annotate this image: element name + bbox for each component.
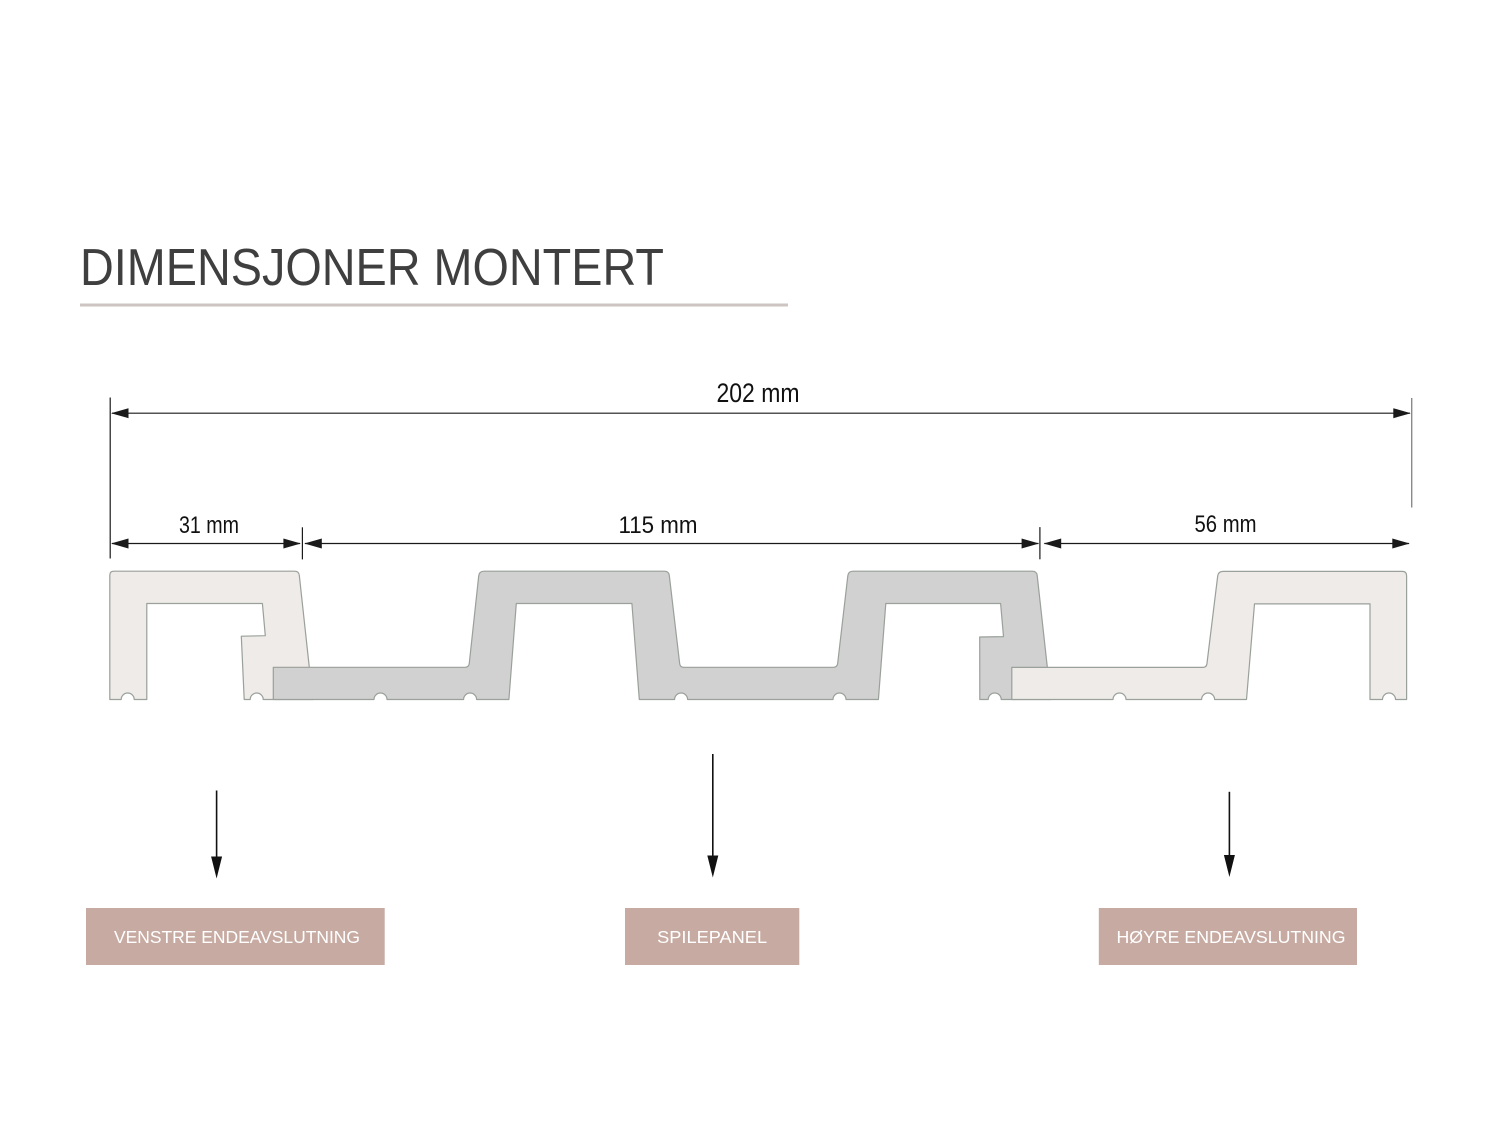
svg-text:SPILEPANEL: SPILEPANEL bbox=[657, 927, 767, 947]
svg-text:DIMENSJONER MONTERT: DIMENSJONER MONTERT bbox=[80, 239, 664, 297]
svg-text:31 mm: 31 mm bbox=[179, 512, 239, 539]
svg-text:202 mm: 202 mm bbox=[717, 378, 800, 408]
svg-text:VENSTRE ENDEAVSLUTNING: VENSTRE ENDEAVSLUTNING bbox=[114, 927, 360, 947]
svg-text:HØYRE ENDEAVSLUTNING: HØYRE ENDEAVSLUTNING bbox=[1117, 927, 1346, 947]
svg-text:56 mm: 56 mm bbox=[1195, 511, 1257, 538]
svg-text:115 mm: 115 mm bbox=[619, 512, 698, 539]
